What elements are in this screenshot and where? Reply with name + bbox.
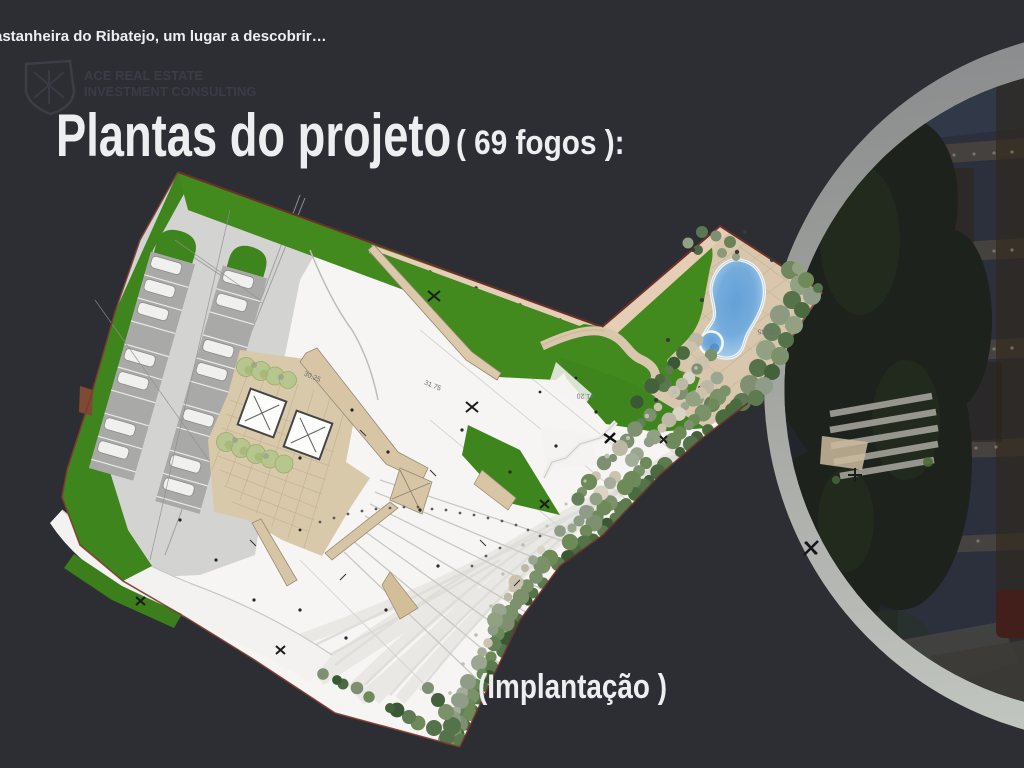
svg-text:41.20: 41.20 <box>576 392 594 399</box>
svg-text:ACE REAL ESTATE: ACE REAL ESTATE <box>84 68 204 83</box>
svg-text:32.45: 32.45 <box>757 327 775 334</box>
svg-text:INVESTMENT CONSULTING: INVESTMENT CONSULTING <box>84 84 256 99</box>
